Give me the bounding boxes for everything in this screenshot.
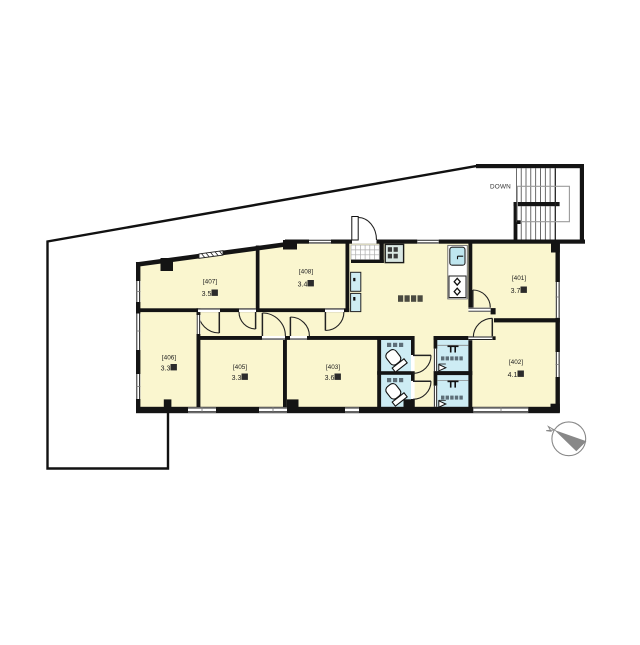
svg-text:[407]: [407] bbox=[203, 279, 217, 286]
svg-text:3.5: 3.5 bbox=[202, 291, 212, 298]
svg-text:3.3: 3.3 bbox=[232, 375, 242, 382]
svg-text:4.1: 4.1 bbox=[508, 372, 518, 379]
svg-text:[405]: [405] bbox=[233, 364, 247, 371]
svg-text:DOWN: DOWN bbox=[490, 183, 511, 190]
svg-text:[402]: [402] bbox=[509, 359, 523, 366]
svg-text:[406]: [406] bbox=[162, 355, 176, 362]
svg-text:3.6: 3.6 bbox=[325, 375, 335, 382]
svg-text:[403]: [403] bbox=[326, 364, 340, 371]
svg-text:3.3: 3.3 bbox=[161, 366, 171, 373]
svg-text:[401]: [401] bbox=[512, 275, 526, 282]
svg-text:3.7: 3.7 bbox=[511, 288, 521, 295]
svg-text:[408]: [408] bbox=[299, 269, 313, 276]
svg-text:3.4: 3.4 bbox=[298, 282, 308, 289]
